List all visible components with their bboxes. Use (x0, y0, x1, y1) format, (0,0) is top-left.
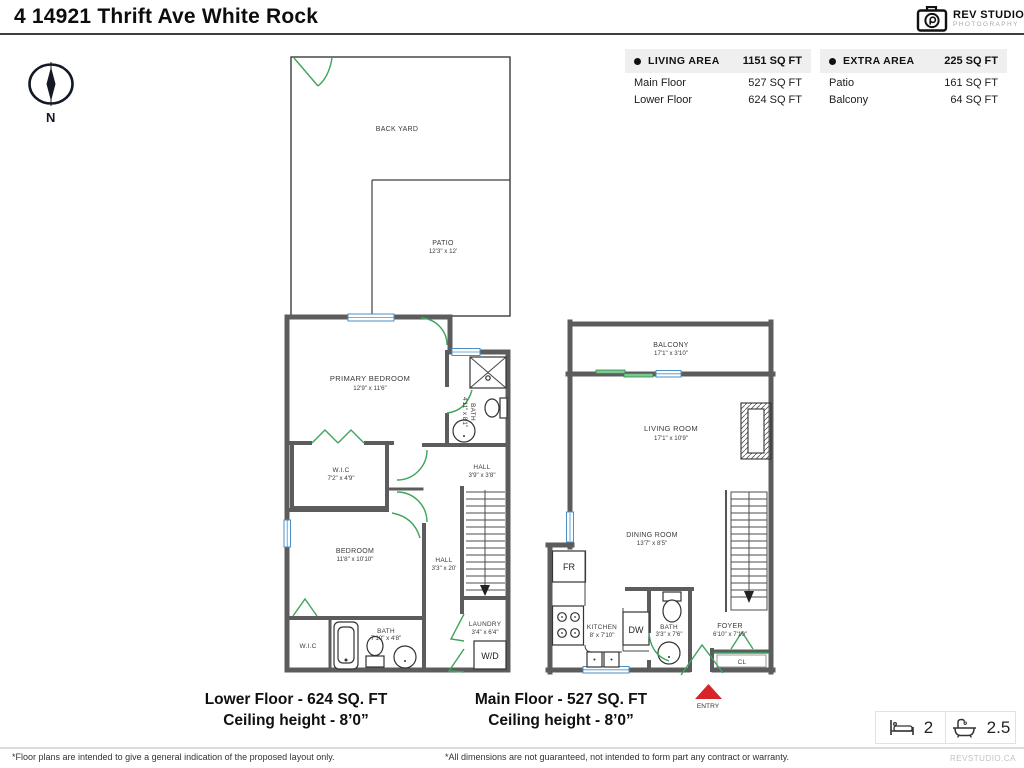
toilet-fixture-upper (485, 398, 507, 418)
stove-fixture (553, 606, 584, 645)
page-title: 4 14921 Thrift Ave White Rock (14, 5, 318, 29)
area-row-label: Patio (829, 77, 854, 89)
bullet-icon (829, 58, 836, 65)
primary-bedroom-label: PRIMARY BEDROOM (330, 374, 410, 383)
area-row: Patio 161 SQ FT (820, 73, 1007, 90)
compass-north-label: N (46, 110, 55, 125)
bed-count-value: 2 (924, 718, 933, 738)
kitchen-label: KITCHEN (587, 624, 617, 631)
fireplace (741, 403, 771, 459)
logo-subtitle: PHOTOGRAPHY (953, 22, 1024, 29)
bedroom-dims: 11'8" x 10'10" (337, 556, 374, 563)
bedroom-label: BEDROOM (336, 548, 374, 555)
fridge-label: FR (563, 562, 575, 572)
bath-upper-dims: 4'11" x 8'1" (461, 397, 468, 427)
closet-label: CL (738, 659, 747, 666)
bed-count: 2 (876, 712, 945, 743)
extra-area-table: EXTRA AREA 225 SQ FT Patio 161 SQ FT Bal… (820, 49, 1007, 107)
bath-lower-label: BATH (377, 628, 395, 635)
main-floor-caption: Main Floor - 527 SQ. FT Ceiling height -… (411, 690, 711, 732)
bed-icon (888, 718, 915, 737)
living-area-table: LIVING AREA 1151 SQ FT Main Floor 527 SQ… (625, 49, 811, 107)
bath-main-dims: 3'3" x 7'6" (655, 631, 682, 638)
area-row-value: 64 SQ FT (950, 94, 998, 106)
extra-area-header: EXTRA AREA 225 SQ FT (820, 49, 1007, 73)
bath-icon (951, 718, 978, 738)
stairs-down (466, 490, 505, 596)
wic-upper-label: W.I.C (332, 467, 349, 474)
area-row-value: 624 SQ FT (748, 94, 802, 106)
stairs-main (731, 492, 767, 610)
lower-caption-line1: Lower Floor - 624 SQ. FT (146, 690, 446, 711)
sink-fixture-lower (394, 646, 416, 668)
balcony-dims: 17'1" x 3'10" (654, 350, 688, 357)
wd-label: W/D (481, 651, 499, 661)
wic-lower-label: W.I.C (299, 643, 316, 650)
logo-text: REV STUDIO PHOTOGRAPHY (953, 10, 1024, 29)
balcony-label: BALCONY (653, 342, 689, 349)
living-area-header: LIVING AREA 1151 SQ FT (625, 49, 811, 73)
dining-room-dims: 13'7" x 8'5" (637, 540, 668, 547)
area-row-label: Balcony (829, 94, 868, 106)
bed-bath-stats: 2 2.5 (875, 711, 1016, 744)
dishwasher-label: DW (629, 625, 644, 635)
hall-lower-dims: 3'3" x 20' (432, 565, 457, 572)
living-area-title: LIVING AREA (648, 55, 720, 67)
patio-dims: 12'3" x 12' (429, 248, 457, 255)
lower-floor-plan: BACK YARD PATIO 12'3" x 12' (275, 50, 520, 690)
back-yard: BACK YARD (291, 57, 510, 316)
logo-name: REV STUDIO (953, 10, 1024, 22)
main-caption-line1: Main Floor - 527 SQ. FT (411, 690, 711, 711)
dining-room-label: DINING ROOM (626, 532, 678, 539)
bath-upper-label: BATH (469, 403, 476, 421)
extra-area-total: 225 SQ FT (944, 55, 998, 67)
footer-divider (0, 747, 1024, 749)
floorplan-page: 4 14921 Thrift Ave White Rock REV STUDIO… (0, 0, 1024, 768)
foyer-dims: 6'10" x 7'10" (713, 631, 747, 638)
extra-area-title: EXTRA AREA (843, 55, 914, 67)
area-row: Lower Floor 624 SQ FT (625, 90, 811, 107)
disclaimer-left: *Floor plans are intended to give a gene… (12, 752, 335, 762)
bullet-icon (634, 58, 641, 65)
hall-upper-label: HALL (473, 464, 490, 471)
laundry-label: LAUNDRY (469, 621, 502, 628)
lower-caption-line2: Ceiling height - 8’0” (146, 711, 446, 732)
hall-upper-dims: 3'9" x 3'8" (468, 472, 495, 479)
camera-icon (916, 6, 948, 33)
living-room-dims: 17'1" x 10'9" (654, 435, 688, 442)
lower-floor-caption: Lower Floor - 624 SQ. FT Ceiling height … (146, 690, 446, 732)
area-row-label: Main Floor (634, 77, 686, 89)
bath-count: 2.5 (945, 712, 1015, 743)
toilet-fixture-main (663, 592, 681, 622)
shower-fixture (470, 357, 506, 388)
area-row-label: Lower Floor (634, 94, 692, 106)
laundry-dims: 3'4" x 6'4" (471, 629, 498, 636)
bathtub-fixture (334, 622, 358, 669)
kitchen-dims: 8' x 7'10" (590, 632, 615, 639)
primary-bedroom-dims: 12'9" x 11'6" (353, 385, 386, 392)
back-yard-label: BACK YARD (376, 126, 419, 133)
area-row: Main Floor 527 SQ FT (625, 73, 811, 90)
wic-upper-dims: 7'2" x 4'9" (327, 475, 354, 482)
disclaimer-center: *All dimensions are not guaranteed, not … (445, 752, 789, 762)
area-row-value: 527 SQ FT (748, 77, 802, 89)
bath-main-label: BATH (660, 624, 678, 631)
hall-lower-label: HALL (435, 557, 452, 564)
rev-studio-logo: REV STUDIO PHOTOGRAPHY (916, 6, 1024, 33)
patio-label: PATIO (432, 240, 454, 247)
main-caption-line2: Ceiling height - 8’0” (411, 711, 711, 732)
bath-count-value: 2.5 (987, 718, 1011, 738)
area-row-value: 161 SQ FT (944, 77, 998, 89)
area-row: Balcony 64 SQ FT (820, 90, 1007, 107)
main-floor-plan: ENTRY BALCONY 17'1" x 3'10" LIVING ROOM … (540, 315, 780, 715)
living-room-label: LIVING ROOM (644, 424, 698, 433)
website-label: REVSTUDIO.CA (950, 754, 1016, 763)
title-divider (0, 33, 1024, 35)
compass-icon: N (24, 58, 80, 126)
bath-lower-dims: 7'10" x 4'8" (371, 635, 402, 642)
living-area-total: 1151 SQ FT (743, 55, 802, 67)
foyer-label: FOYER (717, 623, 743, 630)
